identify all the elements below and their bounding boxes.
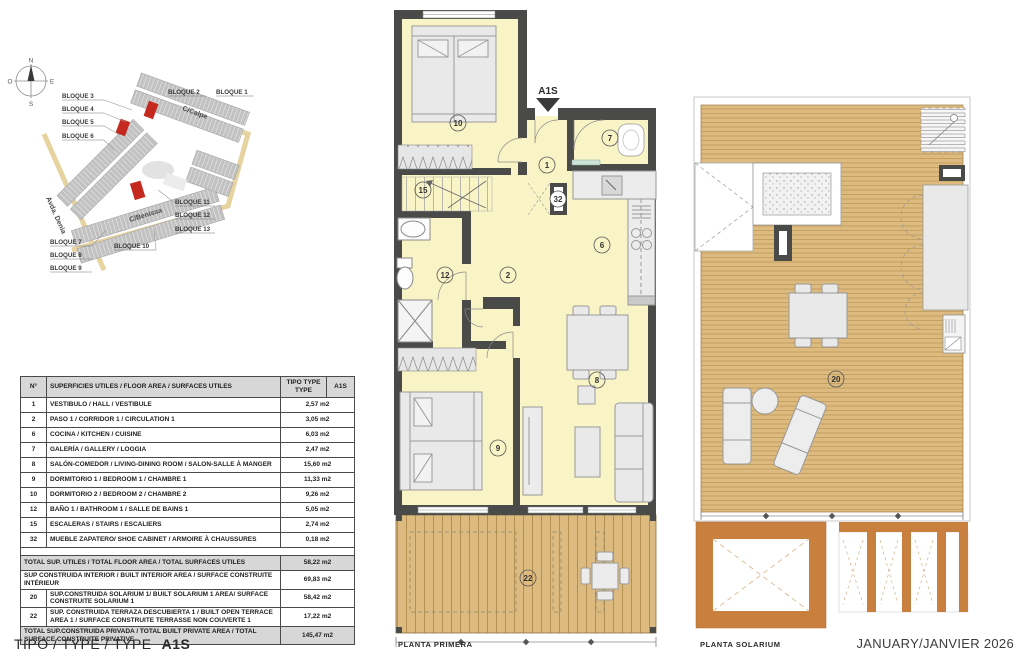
skylight (753, 163, 841, 225)
lounge-side-table (752, 388, 778, 414)
floor-plan-solarium: 20 (691, 95, 977, 640)
building-blocks (57, 73, 250, 263)
double-bed-bedroom2 (412, 26, 496, 122)
pergola-frame-left (696, 522, 826, 628)
pergola (695, 163, 753, 251)
block-label: BLOQUE 1 (216, 89, 248, 96)
tv-unit (523, 407, 542, 495)
header-desc: SUPERFICIES UTILES / FLOOR AREA / SURFAC… (47, 377, 281, 398)
side-table (578, 386, 595, 404)
block-label: BLOQUE 10 (114, 243, 150, 250)
floor-plan-primera: A1S 10 15 1 7 32 6 12 2 8 9 22 (388, 2, 664, 654)
table-row: 8SALÓN-COMEDOR / LIVING-DINING ROOM / SA… (21, 458, 355, 473)
table-row: 6COCINA / KITCHEN / CUISINE6,03 m2 (21, 428, 355, 443)
type-label: TIPO / TYPE / TYPE (14, 636, 152, 652)
table-row: 15ESCALERAS / STAIRS / ESCALIERS2,74 m2 (21, 518, 355, 533)
table-row: 10DORMITORIO 2 / BEDROOM 2 / CHAMBRE 29,… (21, 488, 355, 503)
block-label: BLOQUE 4 (62, 106, 94, 113)
svg-text:6: 6 (600, 241, 605, 250)
svg-text:E: E (50, 79, 55, 86)
svg-text:1: 1 (545, 161, 550, 170)
header-type: A1S (327, 377, 355, 398)
compass-icon: N E S O (7, 58, 54, 108)
block-label: BLOQUE 12 (175, 212, 211, 219)
table-header-row: N° SUPERFICIES UTILES / FLOOR AREA / SUR… (21, 377, 355, 398)
type-value: A1S (162, 636, 191, 652)
dining-table (567, 306, 628, 379)
block-label: BLOQUE 3 (62, 93, 94, 100)
pergola-frame-right (839, 522, 968, 612)
svg-text:22: 22 (524, 574, 533, 583)
table-row: 32MUEBLE ZAPATERO/ SHOE CABINET / ARMOIR… (21, 533, 355, 548)
svg-text:8: 8 (595, 376, 600, 385)
block-label: BLOQUE 2 (168, 89, 200, 96)
date-caption: JANUARY/JANVIER 2026 (857, 636, 1015, 651)
areas-table: N° SUPERFICIES UTILES / FLOOR AREA / SUR… (20, 376, 355, 645)
wardrobe-bedroom2 (398, 145, 472, 169)
svg-text:10: 10 (454, 119, 463, 128)
block-label: BLOQUE 11 (175, 199, 210, 206)
svg-text:20: 20 (832, 375, 841, 384)
table-row: 1VESTIBULO / HALL / VESTIBULE2,57 m2 (21, 398, 355, 413)
svg-text:A1S: A1S (538, 86, 558, 97)
type-caption: TIPO / TYPE / TYPEA1S (14, 636, 190, 652)
svg-text:32: 32 (554, 195, 563, 204)
block-label: BLOQUE 9 (50, 265, 82, 272)
svg-text:O: O (7, 79, 12, 86)
solarium-dining-table (789, 284, 847, 347)
svg-text:9: 9 (496, 444, 501, 453)
plan-title-primera: PLANTA PRIMERA (398, 640, 473, 649)
block-label: BLOQUE 7 (50, 239, 82, 246)
table-total-row: 20SUP.CONSTRUIDA SOLARIUM 1/ BUILT SOLAR… (21, 589, 355, 608)
stairs (402, 177, 492, 211)
table-row: 2PASO 1 / CORRIDOR 1 / CIRCULATION 13,05… (21, 413, 355, 428)
svg-text:7: 7 (608, 134, 613, 143)
table-row: 12BAÑO 1 / BATHROOM 1 / SALLE DE BAINS 1… (21, 503, 355, 518)
double-bed-bedroom1 (400, 392, 482, 490)
header-tipo: TIPO TYPE TYPE (281, 377, 327, 398)
block-label: BLOQUE 6 (62, 133, 94, 140)
roof-vent (939, 165, 965, 181)
grill (943, 315, 965, 353)
svg-text:2: 2 (506, 271, 511, 280)
header-num: N° (21, 377, 47, 398)
unit-entry-marker: A1S (536, 86, 560, 112)
site-plan: N E S O BLOQUE 3 BLOQUE 4 BLOQUE 5 BLOQU… (6, 58, 316, 293)
table-row: 7GALERÍA / GALLERY / LOGGIA2,47 m2 (21, 443, 355, 458)
sofa (615, 403, 653, 502)
svg-text:15: 15 (419, 186, 428, 195)
table-total-row: SUP CONSTRUIDA INTERIOR / BUILT INTERIOR… (21, 571, 355, 590)
outdoor-counter (923, 185, 968, 310)
table-spacer-row (21, 548, 355, 556)
plan-sheet: N E S O BLOQUE 3 BLOQUE 4 BLOQUE 5 BLOQU… (0, 0, 1024, 660)
chimney (774, 225, 792, 261)
plan-title-solarium: PLANTA SOLARIUM (700, 640, 781, 649)
wardrobe-bedroom1 (398, 348, 476, 371)
coffee-table (575, 427, 600, 477)
svg-text:N: N (29, 58, 34, 65)
block-label: BLOQUE 5 (62, 119, 94, 126)
table-total-row: 22SUP. CONSTRUIDA TERRAZA DESCUBIERTA 1 … (21, 608, 355, 627)
table-total-row: TOTAL SUP. UTILES / TOTAL FLOOR AREA / T… (21, 556, 355, 571)
block-label: BLOQUE 8 (50, 252, 82, 259)
room-label-shoe-cabinet: 32 (550, 191, 566, 207)
table-row: 9DORMITORIO 1 / BEDROOM 1 / CHAMBRE 111,… (21, 473, 355, 488)
stair-access (921, 108, 965, 152)
svg-text:S: S (29, 101, 34, 108)
block-label: BLOQUE 13 (175, 226, 211, 233)
svg-text:12: 12 (441, 271, 450, 280)
